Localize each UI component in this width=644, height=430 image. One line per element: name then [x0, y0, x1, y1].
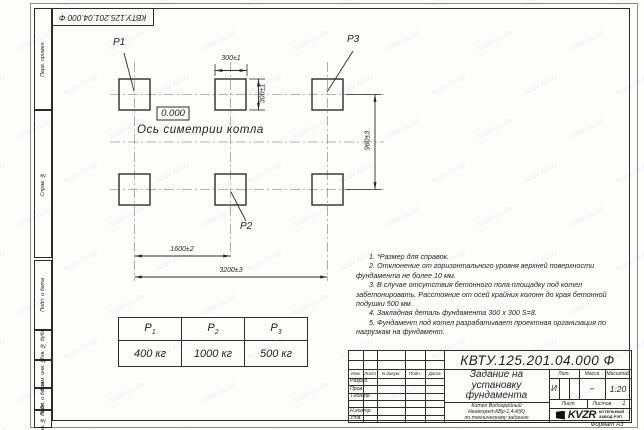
subtitle-line-3: по техническому заданию [444, 415, 549, 421]
row-nkontr: Н.контр. [350, 408, 377, 415]
load-table-value-row: 400 кг 1000 кг 500 кг [119, 341, 308, 367]
leader-p1 [124, 53, 134, 91]
divider [425, 351, 426, 422]
format-label: Формат А3 [583, 422, 631, 428]
divider [377, 351, 378, 422]
scale-header: Масштаб [605, 369, 631, 378]
dim-pad-width: 300±1 [209, 55, 253, 62]
kvzr-logo-text: KVZR [568, 409, 596, 421]
p-subscript: 2 [215, 329, 219, 336]
title-block-subtitle: Котел Водогрейный Heatexpert-КВр-1,4-К(К… [444, 403, 549, 422]
sheets-header: Листов [592, 401, 611, 407]
load-header-p1: P1 [119, 318, 182, 341]
load-value-p3: 500 кг [245, 341, 308, 367]
note-3: 3. В случае отсутствия бетонного пола пл… [356, 280, 618, 308]
logo-caption: КОТЕЛЬНЫЙ ЗАВОД РЭП [599, 410, 624, 419]
logo-cell: KVZR КОТЕЛЬНЫЙ ЗАВОД РЭП [549, 408, 631, 422]
col-list: Лист [363, 369, 377, 378]
kvzr-logo-icon [556, 411, 565, 420]
leader-p3 [327, 51, 353, 92]
drawing-sheet: kotel-kv.kzkotel-kv.kzkotel-kv.kzkotel-k… [0, 0, 644, 430]
col-data: Дата [425, 369, 444, 378]
col-ndokum: N докум. [377, 369, 405, 378]
divider [349, 360, 444, 361]
leader-lines [124, 51, 353, 221]
sheets-cell: Листов 1 [587, 399, 631, 408]
divider [569, 378, 570, 399]
sheet-header: Лист [549, 399, 587, 408]
p-symbol: P [144, 322, 151, 334]
row-razrab: Разраб. [350, 378, 377, 385]
title-line-1: Задание на [444, 370, 549, 381]
elevation-mark: 0.000 [157, 107, 189, 120]
pad-label-p3: P3 [347, 34, 359, 45]
note-4: 4. Закладная деталь фундамента 300 x 300… [356, 308, 618, 317]
symmetry-axis-label: Ось симетрии котла [137, 124, 264, 136]
p-symbol: P [270, 322, 277, 334]
scale-value: 1:20 [605, 378, 631, 399]
p-symbol: P [207, 322, 214, 334]
dim-row-spacing: 960±3 [365, 119, 372, 163]
row-utv: Утв. [350, 415, 377, 422]
row-blank [350, 400, 377, 407]
load-value-p1: 400 кг [119, 341, 182, 367]
col-podp: Подп. [405, 369, 425, 378]
mass-value: – [579, 378, 605, 399]
logo-caption-line-2: ЗАВОД РЭП [599, 415, 624, 420]
p-subscript: 3 [278, 329, 282, 336]
load-value-p2: 1000 кг [182, 341, 245, 367]
dim-pad-height: 300±1 [260, 72, 267, 116]
load-header-p3: P3 [245, 318, 308, 341]
lit-value: И [549, 378, 559, 399]
row-tkontr: Т.контр. [350, 393, 377, 400]
sheets-value: 1 [622, 401, 625, 407]
note-1: 1. *Размер для справок. [356, 252, 618, 261]
divider [559, 378, 560, 399]
title-block: КВТУ.125.201.04.000 Ф Изм. Лист N докум.… [348, 350, 632, 423]
leader-p2 [231, 192, 246, 221]
row-prov: Пров. [350, 386, 377, 393]
pad-label-p1: P1 [113, 37, 125, 48]
col-izm: Изм. [349, 369, 363, 378]
pad-label-p2: P2 [240, 221, 252, 232]
note-2: 2. Отклонение от горизонтального уровня … [356, 261, 618, 280]
title-block-title: Задание на установку фундамента [444, 370, 549, 402]
load-header-p2: P2 [182, 318, 245, 341]
divider [405, 351, 406, 422]
technical-notes: 1. *Размер для справок. 2. Отклонение от… [356, 252, 618, 337]
dim-col-spacing: 1600±2 [160, 246, 204, 253]
dim-total-span: 3200±3 [209, 267, 253, 274]
title-block-doc-number: КВТУ.125.201.04.000 Ф [444, 351, 631, 369]
mass-header: Масса [579, 369, 605, 378]
p-subscript: 1 [152, 329, 156, 336]
title-line-3: фундамента [444, 391, 549, 402]
note-5: 5. Фундамент под котел разрабатывает про… [356, 318, 618, 337]
load-table: P1 P2 P3 400 кг 1000 кг 500 кг [118, 317, 308, 367]
lit-header: Лит. [549, 369, 579, 378]
load-table-header-row: P1 P2 P3 [119, 318, 308, 341]
